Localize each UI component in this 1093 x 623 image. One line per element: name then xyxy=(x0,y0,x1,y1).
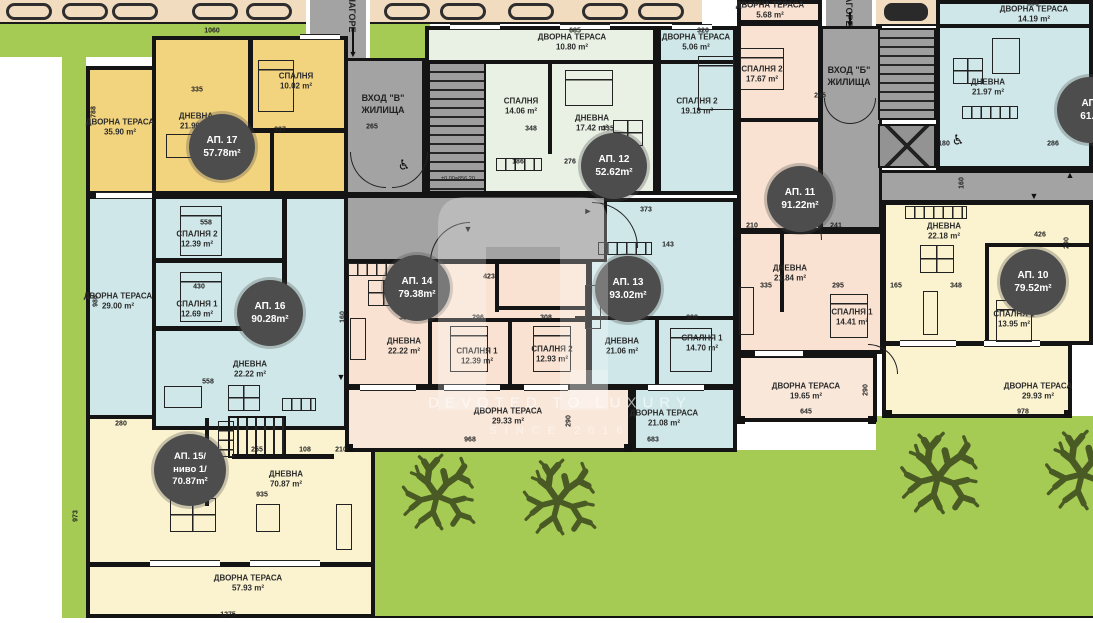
badge-ap16[interactable]: АП. 1690.28m² xyxy=(237,280,303,346)
dimension-label: 241 xyxy=(830,223,842,230)
dimension-label: 685 xyxy=(569,28,581,35)
dimension-label: 160 xyxy=(340,311,347,323)
floor-plan-canvas: { "plan": { "watermark_line1": "DEVOTED … xyxy=(0,0,1093,623)
arrow-down-icon: ▼ xyxy=(732,235,741,245)
car-icon xyxy=(384,3,430,20)
room-label: ДВОРНА ТЕРАСА57.93 m² xyxy=(214,574,282,595)
dimension-label: 558 xyxy=(202,379,214,386)
dimension-label: 276 xyxy=(564,159,576,166)
room-label: СПАЛНЯ 217.67 m² xyxy=(741,65,782,86)
room-label: ДНЕВНА22.22 m² xyxy=(233,360,267,381)
dimension-label: 683 xyxy=(647,437,659,444)
room-label: СПАЛНЯ 114.70 m² xyxy=(681,334,722,355)
dimension-label: 210 xyxy=(335,447,347,454)
room-label: ДНЕВНА22.18 m² xyxy=(927,222,961,243)
arrow-down-icon: ▼ xyxy=(846,19,855,29)
dimension-label: 337 xyxy=(274,127,286,134)
car-icon xyxy=(6,3,52,20)
room-label: ДВОРНА ТЕРАСА10.80 m² xyxy=(538,33,606,54)
entrance-label-v: ВХОД "В"ЖИЛИЩА xyxy=(361,92,404,116)
arrow-down-icon: ▼ xyxy=(1030,191,1039,201)
car-icon xyxy=(638,3,684,20)
arrow-down-icon: ▼ xyxy=(337,372,346,382)
room-label: СПАЛНЯ 114.41 m² xyxy=(831,308,872,329)
dimension-label: 348 xyxy=(525,126,537,133)
dimension-label: 210 xyxy=(746,223,758,230)
room-label: СПАЛНЯ 219.18 m² xyxy=(676,97,717,118)
room-label: ДВОРНА ТЕРАСА5.68 m² xyxy=(736,1,804,22)
car-icon xyxy=(440,3,486,20)
staircase xyxy=(428,62,486,193)
wall xyxy=(655,320,659,388)
window xyxy=(648,384,704,391)
dimension-label: 1275 xyxy=(220,612,236,619)
dimension-label: 373 xyxy=(640,207,652,214)
dimension-label: 973 xyxy=(73,510,80,522)
window xyxy=(560,24,610,30)
column xyxy=(868,416,876,424)
watermark-subtext: SINCE 2016 xyxy=(489,425,630,437)
room-label: ДВОРНА ТЕРАСА29.93 m² xyxy=(1004,382,1072,403)
badge-ap10[interactable]: АП. 1079.52m² xyxy=(1000,249,1066,315)
arrow-up-icon: ▲ xyxy=(1066,170,1075,180)
room-label: ДНЕВНА70.87 m² xyxy=(269,470,303,491)
window xyxy=(150,560,220,567)
dimension-label: 558 xyxy=(200,220,212,227)
dimension-label: 968 xyxy=(464,437,476,444)
dimension-label: 335 xyxy=(191,87,203,94)
wall xyxy=(86,562,375,567)
developer-logo-watermark xyxy=(428,185,623,420)
car-icon xyxy=(62,3,108,20)
car-icon xyxy=(112,3,158,20)
window xyxy=(250,560,320,567)
badge-ap17[interactable]: АП. 1757.78m² xyxy=(189,114,255,180)
dimension-label: 280 xyxy=(115,421,127,428)
dimension-label: 295 xyxy=(832,283,844,290)
elevator xyxy=(878,124,936,168)
wall xyxy=(985,247,989,345)
dimension-label: 186 xyxy=(512,159,524,166)
badge-ap11[interactable]: АП. 1191.22m² xyxy=(767,166,833,232)
badge-ap15[interactable]: АП. 15/ниво 1/70.87m² xyxy=(154,434,226,506)
sofa-icon xyxy=(164,386,202,408)
wall xyxy=(425,60,657,64)
car-icon xyxy=(246,3,292,20)
sofa-icon xyxy=(256,504,280,532)
wheelchair-icon: ♿ xyxy=(398,157,411,174)
dimension-label: 645 xyxy=(800,409,812,416)
room-label: ДВОРНА ТЕРАСА35.90 m² xyxy=(86,118,154,139)
room-label: ДВОРНА ТЕРАСА21.08 m² xyxy=(630,409,698,430)
room-label: ДВОРНА ТЕРАСА5.06 m² xyxy=(662,33,730,54)
dimension-label: 290 xyxy=(1064,237,1071,249)
dimension-label: 788 xyxy=(91,106,98,118)
dimension-label: 165 xyxy=(890,283,902,290)
dimension-label: 980 xyxy=(93,295,100,307)
elevation-marker: ±0.00=856.20 xyxy=(441,176,475,182)
room-label: СПАЛНЯ 112.69 m² xyxy=(176,300,217,321)
dimension-label: 286 xyxy=(1047,141,1059,148)
lawn xyxy=(370,24,430,60)
car-icon xyxy=(508,3,554,20)
kitchen-counter-icon xyxy=(962,106,1018,119)
kitchen-counter-icon xyxy=(282,398,316,411)
arrow-down-icon: ▼ xyxy=(349,49,358,59)
window xyxy=(300,34,340,40)
entrance-label-b: ВХОД "Б"ЖИЛИЩА xyxy=(827,64,870,88)
dimension-label: 426 xyxy=(1034,232,1046,239)
watermark-text: DEVOTED TO LUXURY xyxy=(428,395,692,412)
dimension-label: 348 xyxy=(950,283,962,290)
tree-icon xyxy=(518,457,598,537)
window xyxy=(755,350,803,357)
room-label: СПАЛНЯ14.06 m² xyxy=(504,97,539,118)
room-label: СПАЛНЯ10.02 m² xyxy=(279,72,314,93)
room-label: ДВОРНА ТЕРАСА19.65 m² xyxy=(772,382,840,403)
dimension-label: 290 xyxy=(863,384,870,396)
wall xyxy=(985,243,1093,247)
room-label: СПАЛНЯ 212.39 m² xyxy=(176,230,217,251)
room-label: ДНЕВНА22.22 m² xyxy=(387,337,421,358)
wheelchair-icon: ♿ xyxy=(952,132,965,149)
sofa-icon xyxy=(992,38,1020,74)
room-label: ДВОРНА ТЕРАСА14.19 m² xyxy=(1000,5,1068,26)
sofa-icon xyxy=(336,504,352,550)
terrace-ap10 xyxy=(882,342,1072,418)
column xyxy=(737,416,745,424)
tree-icon xyxy=(1040,428,1093,512)
column xyxy=(624,444,632,452)
sofa-icon xyxy=(350,318,366,360)
dimension-label: 1060 xyxy=(204,28,220,35)
dimension-label: 865 xyxy=(1027,1,1039,8)
window xyxy=(900,340,956,347)
column xyxy=(884,410,892,418)
sofa-icon xyxy=(923,291,938,335)
room-label: ДНЕВНА21.84 m² xyxy=(773,264,807,285)
window xyxy=(360,384,416,391)
dimension-label: 935 xyxy=(256,492,268,499)
wall xyxy=(248,128,348,133)
dimension-label: 108 xyxy=(299,447,311,454)
wall xyxy=(737,118,822,122)
tree-icon xyxy=(895,430,981,516)
wall xyxy=(548,62,552,154)
lawn-strip xyxy=(62,50,86,618)
dimension-label: 180 xyxy=(938,141,950,148)
wall xyxy=(152,258,286,263)
corridor xyxy=(882,170,1093,203)
wall xyxy=(270,133,274,195)
wall xyxy=(248,36,253,132)
dimension-label: 335 xyxy=(760,283,772,290)
table-icon xyxy=(920,245,954,273)
car-icon xyxy=(582,3,628,20)
sofa-icon xyxy=(739,287,754,335)
column xyxy=(1064,410,1072,418)
dimension-label: 295 xyxy=(814,93,826,100)
bed-icon xyxy=(565,70,613,106)
dimension-label: 335 xyxy=(602,126,614,133)
dimension-label: 143 xyxy=(662,242,674,249)
tree-icon xyxy=(397,452,477,532)
car-icon xyxy=(192,3,238,20)
dimension-label: 320 xyxy=(697,28,709,35)
table-icon xyxy=(228,385,260,411)
dimension-label: 308 xyxy=(686,315,698,322)
dimension-label: 160 xyxy=(959,177,966,189)
car-icon xyxy=(884,3,928,21)
dimension-label: 430 xyxy=(193,284,205,291)
kitchen-counter-icon xyxy=(905,206,967,219)
dimension-label: 255 xyxy=(251,447,263,454)
window xyxy=(96,192,152,199)
dimension-label: 978 xyxy=(1017,409,1029,416)
staircase xyxy=(878,28,936,120)
dimension-label: 265 xyxy=(366,124,378,131)
room-label: ДНЕВНА21.97 m² xyxy=(971,78,1005,99)
wall xyxy=(232,454,334,459)
window xyxy=(450,24,500,30)
